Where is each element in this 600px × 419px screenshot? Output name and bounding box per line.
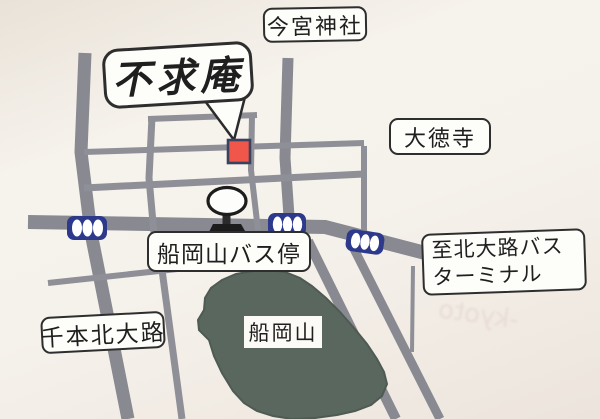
label-funaokayama-hill: 船岡山 — [244, 316, 322, 348]
destination-marker — [228, 140, 250, 163]
road-thin-vertical-b — [251, 116, 258, 230]
funaokayama-bus-stop-text: 船岡山バス停 — [157, 235, 301, 269]
senbon-kitaoji-text: 千本北大路 — [40, 312, 167, 352]
bus-icon — [67, 216, 107, 240]
daitokuji-text: 大徳寺 — [404, 121, 476, 153]
label-imamiya-shrine: 今宮神社 — [263, 6, 368, 43]
kitaoji-terminal-line1: 至北大路バス — [431, 233, 564, 265]
label-kitaoji-bus-terminal: 至北大路バス ターミナル — [421, 228, 587, 296]
funaokayama-hill-text: 船岡山 — [249, 317, 318, 347]
road-thin-horizontal-mid — [84, 143, 364, 152]
map-canvas — [0, 0, 600, 419]
road-thin-vertical-a — [149, 117, 154, 234]
imamiya-shrine-text: 今宮神社 — [267, 8, 364, 42]
label-funaokayama-bus-stop: 船岡山バス停 — [147, 231, 311, 272]
access-map: -kyoto 今宮神社 不求庵 大徳寺 船岡山バス停 至北大路バス ターミナル … — [0, 0, 600, 419]
destination-text: 不求庵 — [111, 44, 245, 106]
label-senbon-kitaoji: 千本北大路 — [40, 311, 166, 354]
label-daitokuji: 大徳寺 — [389, 118, 491, 155]
label-destination-bubble: 不求庵 — [101, 40, 254, 109]
road-thin-horizontal-lower — [84, 174, 364, 188]
kitaoji-terminal-line2: ターミナル — [432, 261, 543, 292]
road-thin-vertical-east — [412, 266, 413, 352]
